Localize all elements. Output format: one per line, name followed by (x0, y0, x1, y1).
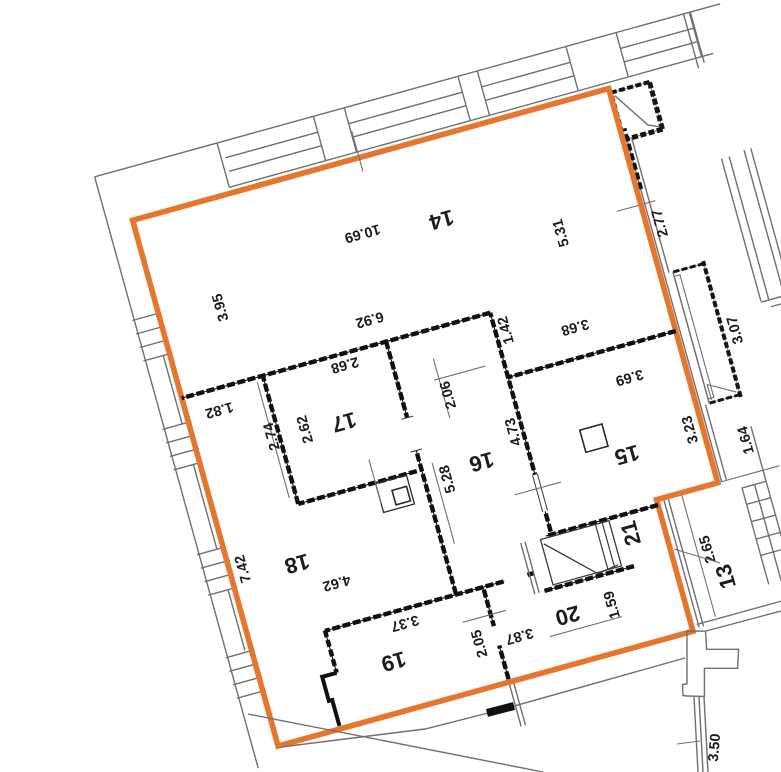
svg-text:3.50: 3.50 (706, 733, 724, 763)
